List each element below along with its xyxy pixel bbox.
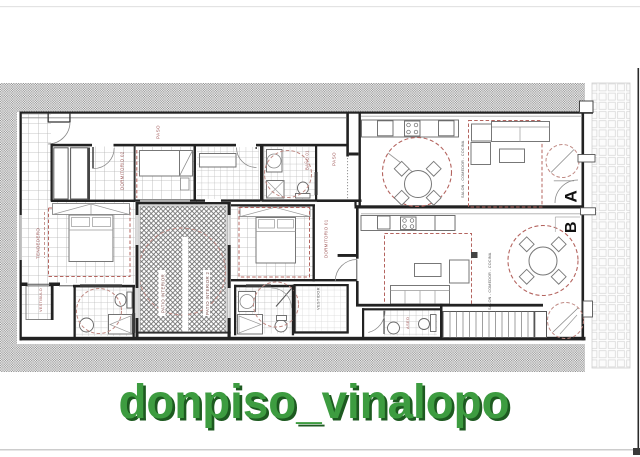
svg-text:PASO: PASO bbox=[156, 125, 161, 139]
svg-text:PATIO INTERIOR: PATIO INTERIOR bbox=[161, 274, 166, 313]
svg-text:B: B bbox=[563, 222, 580, 234]
svg-text:VESTIDOR: VESTIDOR bbox=[316, 287, 321, 310]
svg-text:SALON - COMEDOR - COCINA: SALON - COMEDOR - COCINA bbox=[461, 140, 465, 198]
svg-text:TENDEDERO: TENDEDERO bbox=[36, 228, 41, 259]
svg-text:PASO: PASO bbox=[332, 152, 337, 166]
svg-text:PATIO INTERIOR 2: PATIO INTERIOR 2 bbox=[205, 272, 210, 315]
svg-text:DORMITORIO 02: DORMITORIO 02 bbox=[120, 151, 125, 190]
svg-text:A: A bbox=[562, 190, 581, 202]
svg-text:VESTIBULO: VESTIBULO bbox=[39, 288, 43, 312]
svg-text:BAÑO 01: BAÑO 01 bbox=[305, 150, 310, 170]
svg-text:ASEO: ASEO bbox=[405, 317, 410, 329]
svg-text:DORMITORIO 01: DORMITORIO 01 bbox=[324, 219, 329, 258]
svg-text:donpiso_vinalopo: donpiso_vinalopo bbox=[119, 376, 510, 429]
svg-text:SALON - COMEDOR - COCINA: SALON - COMEDOR - COCINA bbox=[488, 252, 492, 310]
